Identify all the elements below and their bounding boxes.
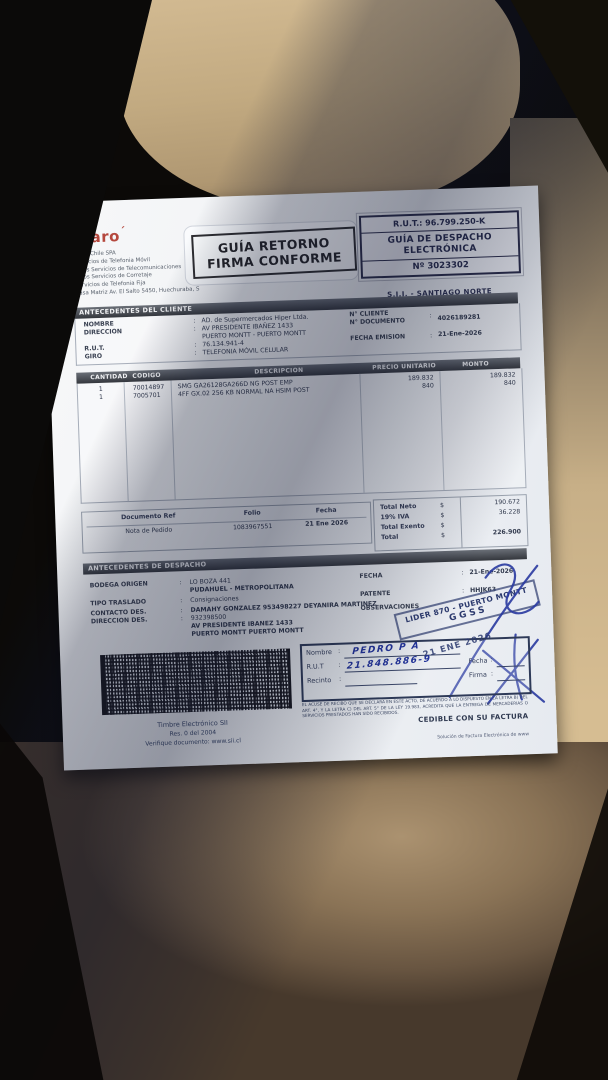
photo-of-dispatch-document: Claro Claro Chile SPA Servicios de Telef… <box>0 0 608 1080</box>
client-field-label: GIRO <box>85 354 103 361</box>
write-line <box>497 679 525 681</box>
firma-label: Firma <box>469 672 487 679</box>
write-line <box>497 665 525 667</box>
client-field-label: DIRECCION <box>84 329 122 337</box>
fecha-label: Fecha <box>468 658 487 665</box>
client-field-label: R.U.T. <box>84 346 104 353</box>
